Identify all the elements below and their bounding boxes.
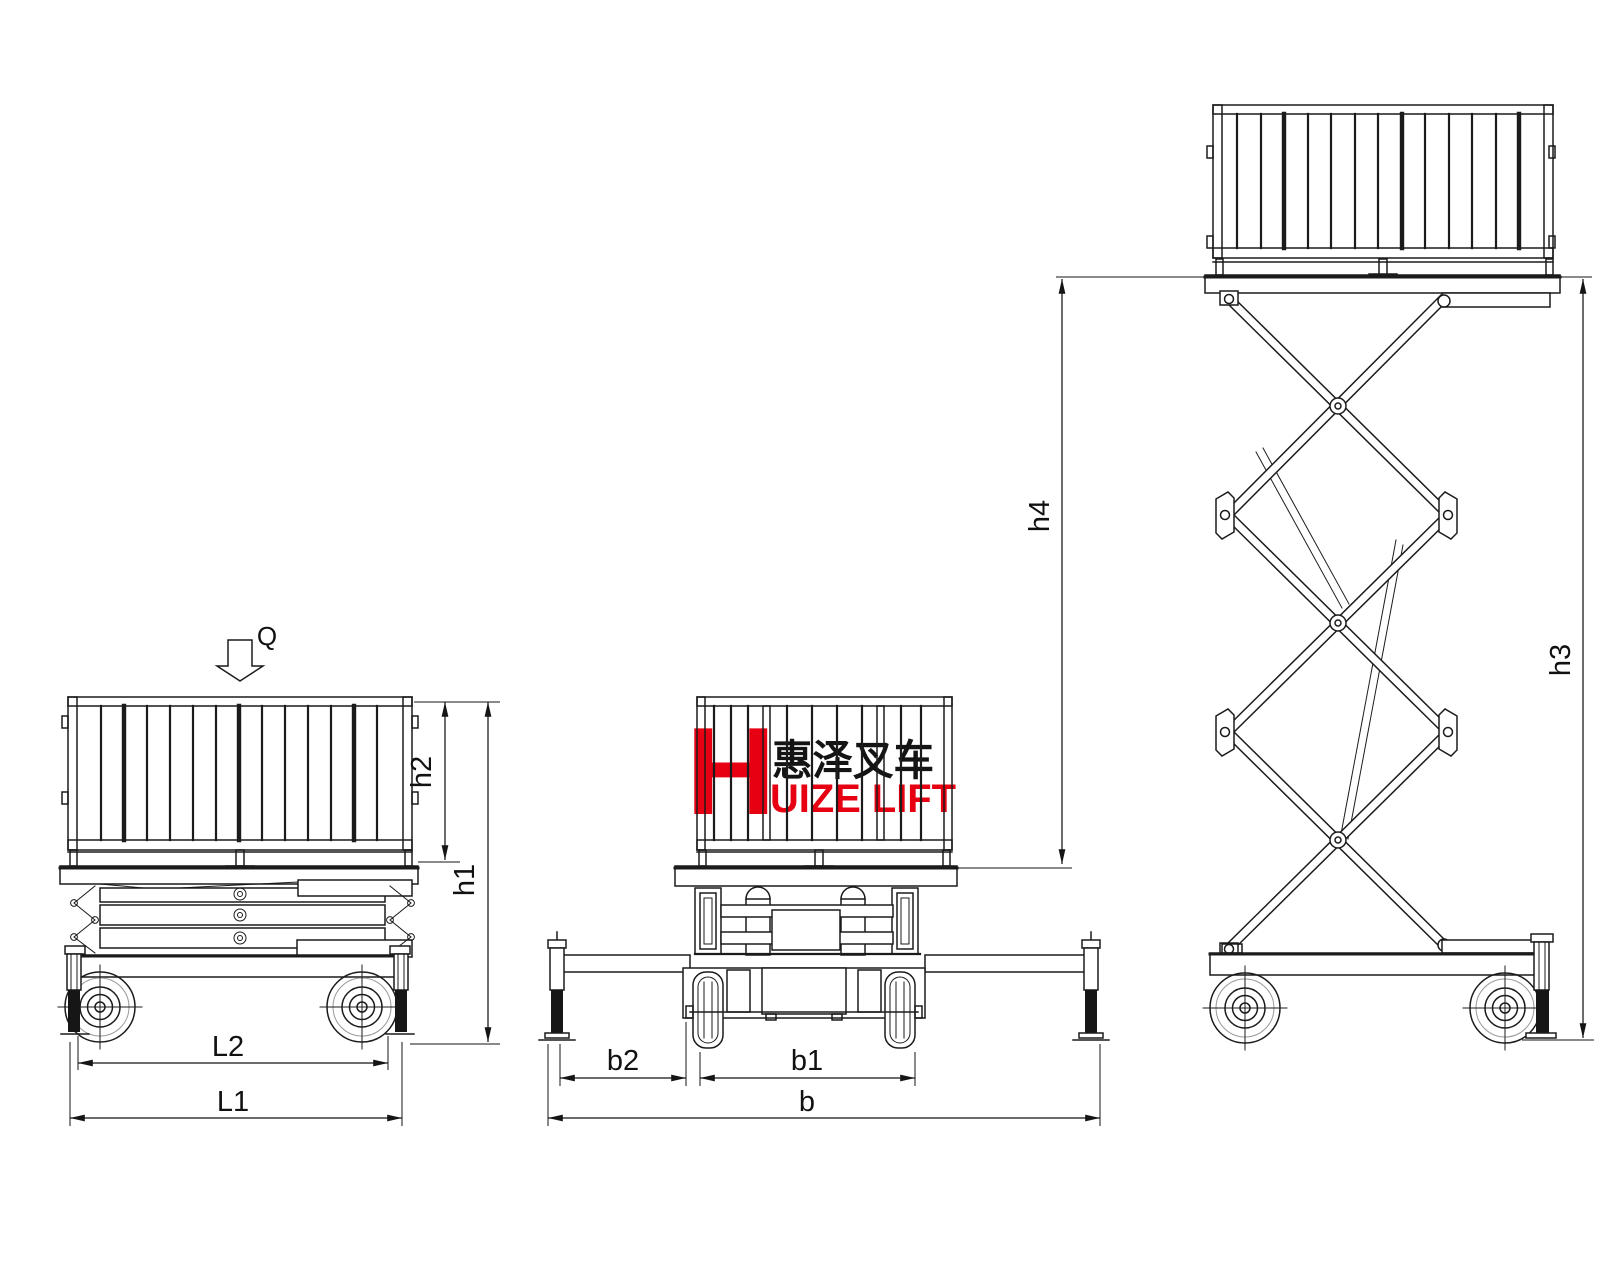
raised-wheel-left: [1203, 966, 1287, 1050]
dim-label-h4: h4: [1024, 500, 1056, 532]
outrigger-jack-right: [1073, 932, 1109, 1040]
front-wheel-right: [885, 972, 915, 1048]
front-wheel-left: [693, 972, 723, 1048]
dim-label-h1: h1: [449, 864, 481, 896]
outrigger-jack-left: [539, 932, 575, 1040]
dim-label-h3: h3: [1545, 644, 1577, 676]
scissor-lift-technical-drawing: H 惠泽叉车 UIZE LIFT: [0, 0, 1600, 1280]
scissor-mechanism: [1216, 291, 1457, 955]
side-view-lowered: [58, 640, 418, 1049]
side-view-raised: [1203, 105, 1560, 1050]
scissor-pack-front: [695, 887, 920, 955]
dim-label-h2: h2: [406, 756, 438, 788]
railing-bars-raised-view: [1237, 114, 1519, 248]
load-label: Q: [257, 621, 277, 651]
dim-label-b2: b2: [607, 1045, 639, 1077]
dim-label-b1: b1: [791, 1045, 823, 1077]
railing-bars-left-view: [101, 706, 377, 840]
drawing-sheet: H 惠泽叉车 UIZE LIFT: [0, 0, 1600, 1280]
dim-label-b: b: [799, 1086, 815, 1118]
brand-logo: H 惠泽叉车 UIZE LIFT: [686, 703, 956, 841]
dim-label-L1: L1: [217, 1086, 249, 1118]
dim-label-L2: L2: [212, 1031, 244, 1063]
